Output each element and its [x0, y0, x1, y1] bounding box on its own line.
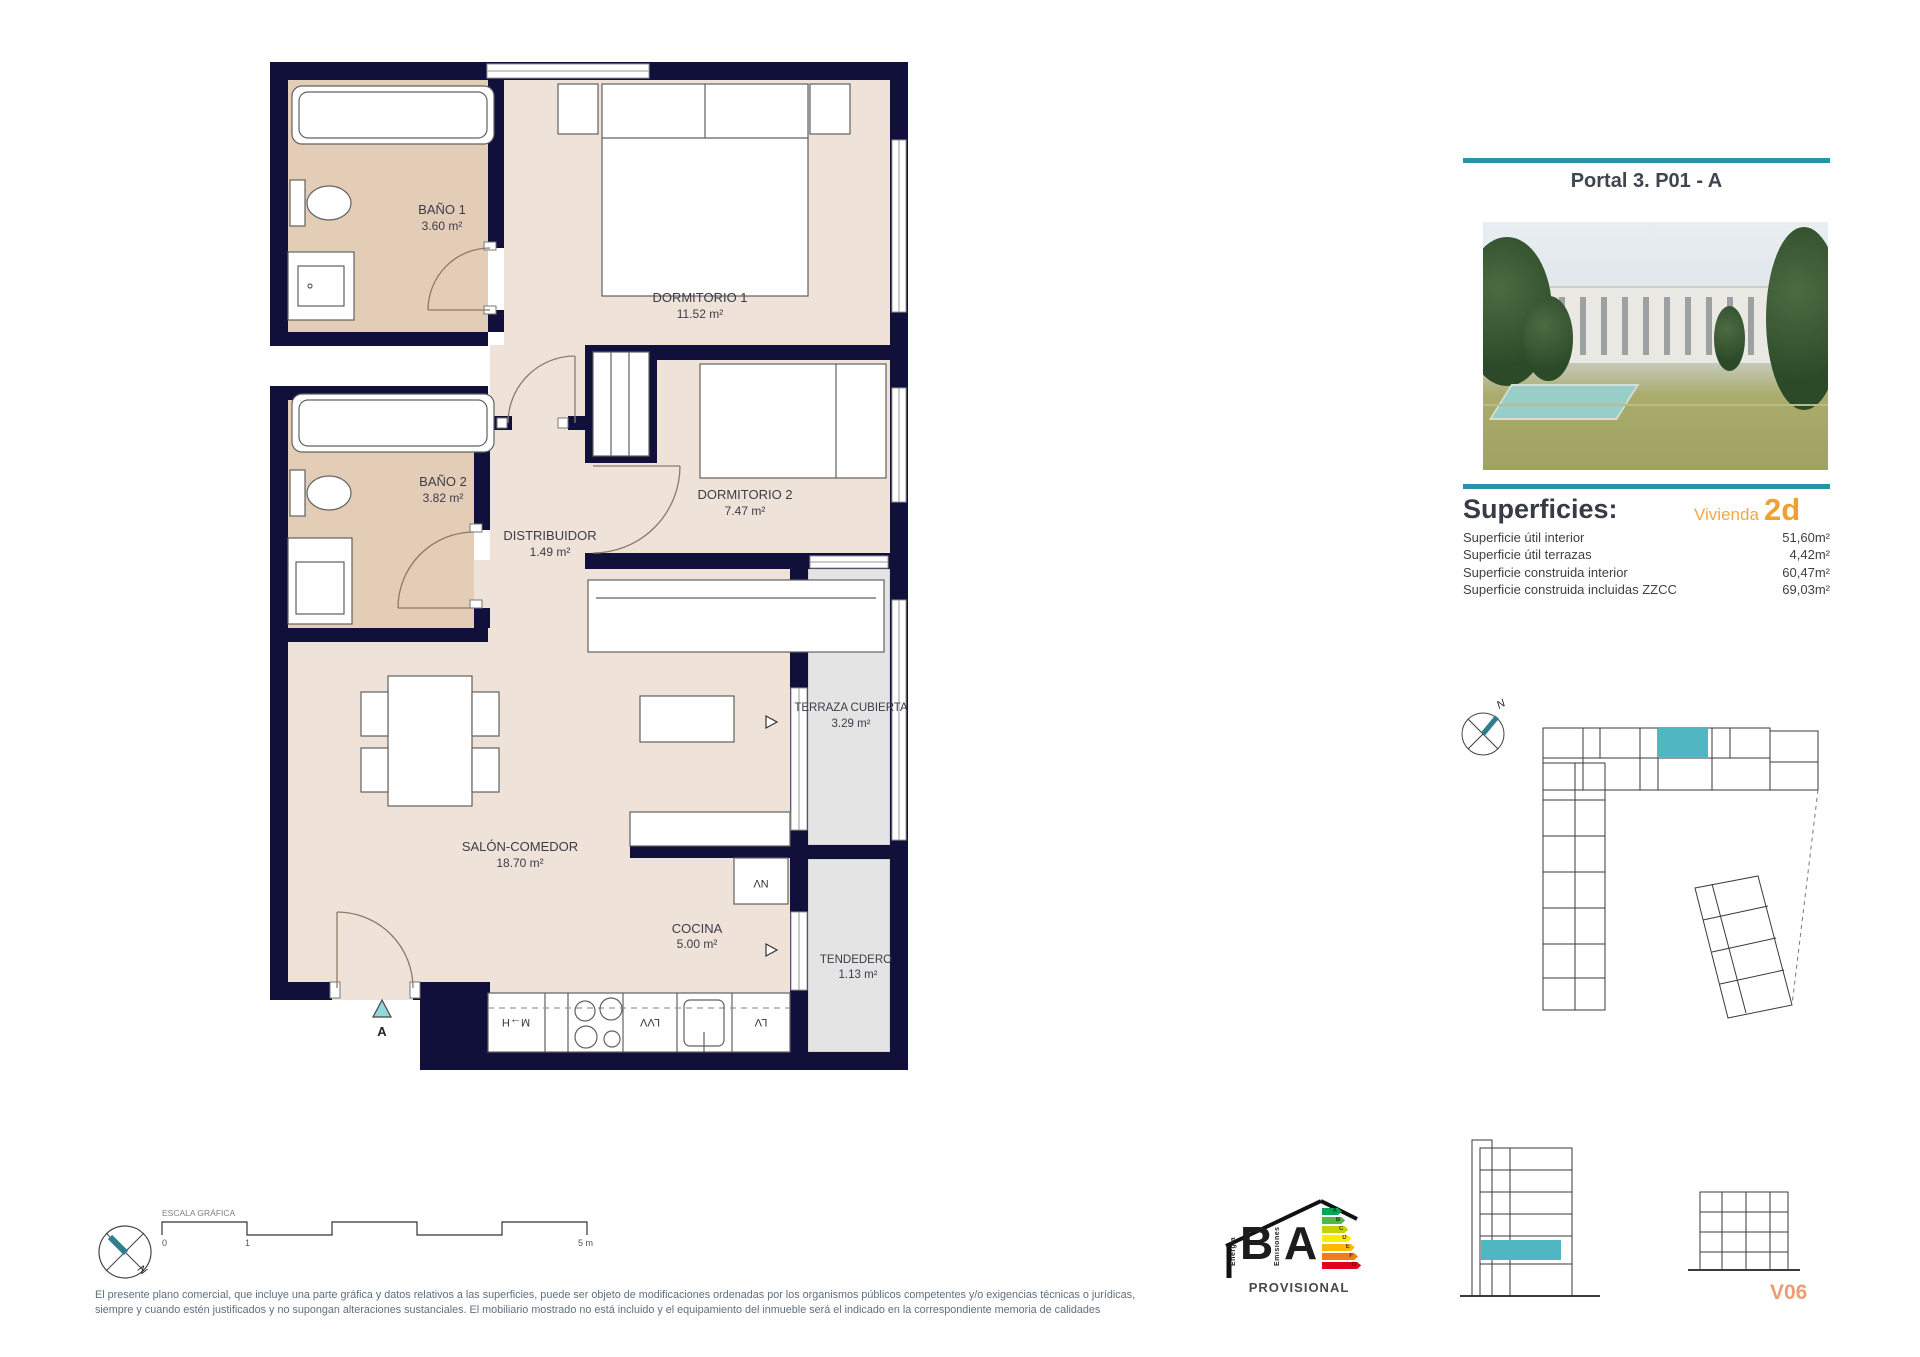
render-pool — [1489, 384, 1640, 420]
site-north-label: N — [1495, 697, 1508, 711]
energy-bar-f: F — [1322, 1253, 1358, 1260]
superficie-row: Superficie útil interior 51,60m² — [1463, 530, 1830, 547]
site-plan: N — [1440, 688, 1840, 1033]
energy-bar-g: G — [1322, 1262, 1361, 1269]
superficie-row: Superficie construida incluidas ZZCC 69,… — [1463, 582, 1830, 599]
energy-bars: ABCDEFG — [1322, 1208, 1361, 1271]
room-label-bano1: BAÑO 1 — [418, 202, 466, 217]
entrance-label: A — [377, 1024, 387, 1039]
page-title: Portal 3. P01 - A — [1463, 170, 1830, 193]
superficie-value: 4,42m² — [1790, 547, 1830, 562]
room-label-tendedero: TENDEDERO — [820, 954, 892, 966]
appliance-dishwasher: LVV — [639, 1016, 660, 1028]
room-area-distribuidor: 1.49 m² — [530, 545, 571, 559]
title-rule — [1463, 158, 1830, 163]
superficie-label: Superficie construida interior — [1463, 565, 1628, 580]
render-tree — [1766, 227, 1828, 411]
superficie-value: 51,60m² — [1782, 530, 1830, 545]
render-tree — [1714, 306, 1745, 370]
vivienda-label: Vivienda — [1694, 505, 1759, 525]
room-label-terraza: TERRAZA CUBIERTA — [794, 702, 908, 714]
energy-word-energia: Energía — [1230, 1222, 1237, 1266]
superficie-row: Superficie construida interior 60,47m² — [1463, 565, 1830, 582]
superficie-label: Superficie construida incluidas ZZCC — [1463, 582, 1677, 597]
superficie-label: Superficie útil terrazas — [1463, 547, 1592, 562]
room-area-tendedero: 1.13 m² — [839, 969, 878, 981]
energy-status: PROVISIONAL — [1224, 1280, 1374, 1295]
appliance-vent: NV — [753, 877, 769, 889]
section-drawings — [1450, 1125, 1820, 1305]
appliance-washer: LV — [754, 1016, 767, 1028]
energy-bar-d: D — [1322, 1235, 1352, 1242]
plan-sheet: A BAÑO 1 3.60 m² DORMITORIO 1 11.52 m² B… — [0, 0, 1920, 1357]
room-label-distribuidor: DISTRIBUIDOR — [503, 528, 596, 543]
scale-label: ESCALA GRÁFICA — [162, 1208, 236, 1218]
entrance-marker: A — [373, 1000, 391, 1039]
superficie-value: 60,47m² — [1782, 565, 1830, 580]
superficies-heading: Superficies: — [1463, 494, 1618, 525]
site-north-arrow — [1462, 713, 1504, 755]
scale-tick-1: 1 — [245, 1238, 250, 1248]
room-label-cocina: COCINA — [672, 921, 723, 936]
room-label-dorm2: DORMITORIO 2 — [697, 487, 792, 502]
energy-bar-e: E — [1322, 1244, 1355, 1251]
room-label-bano2: BAÑO 2 — [419, 474, 467, 489]
room-area-cocina: 5.00 m² — [677, 937, 718, 951]
scale-tick-0: 0 — [162, 1238, 167, 1248]
scale-tick-5m: 5 m — [578, 1238, 593, 1248]
superficie-value: 69,03m² — [1782, 582, 1830, 597]
superficie-label: Superficie útil interior — [1463, 530, 1584, 545]
room-area-bano2: 3.82 m² — [423, 491, 464, 505]
energy-bar-c: C — [1322, 1226, 1348, 1233]
building-render — [1483, 222, 1828, 470]
floor-plan: A BAÑO 1 3.60 m² DORMITORIO 1 11.52 m² B… — [260, 55, 920, 1075]
vivienda-code: 2d — [1764, 492, 1800, 528]
room-area-dorm2: 7.47 m² — [725, 504, 766, 518]
room-area-salon: 18.70 m² — [496, 856, 543, 870]
energy-letter-b: B — [1240, 1220, 1273, 1266]
energy-bar-a: A — [1322, 1208, 1342, 1215]
room-area-bano1: 3.60 m² — [422, 219, 463, 233]
disclaimer: El presente plano comercial, que incluye… — [95, 1288, 1135, 1317]
energy-word-emisiones: Emisiones — [1274, 1222, 1281, 1266]
unit-code: V06 — [1770, 1281, 1807, 1305]
render-tree — [1524, 296, 1572, 380]
disclaimer-line-2: siempre y cuando estén justificados y no… — [95, 1303, 1135, 1318]
energy-letter-a: A — [1284, 1220, 1317, 1266]
energy-label: Energía B Emisiones A ABCDEFG PROVISIONA… — [1224, 1194, 1380, 1306]
appliance-fridge: M→H — [502, 1016, 530, 1028]
room-area-dorm1: 11.52 m² — [677, 307, 723, 321]
section-highlighted-floor — [1481, 1240, 1561, 1260]
superficie-row: Superficie útil terrazas 4,42m² — [1463, 547, 1830, 564]
disclaimer-line-1: El presente plano comercial, que incluye… — [95, 1288, 1135, 1303]
highlighted-unit — [1658, 728, 1708, 758]
room-label-salon: SALÓN-COMEDOR — [462, 839, 578, 854]
superficies-rule — [1463, 484, 1830, 489]
room-label-dorm1: DORMITORIO 1 — [652, 290, 747, 305]
scale-bar — [162, 1222, 587, 1235]
room-area-terraza: 3.29 m² — [832, 718, 871, 730]
energy-bar-b: B — [1322, 1217, 1345, 1224]
